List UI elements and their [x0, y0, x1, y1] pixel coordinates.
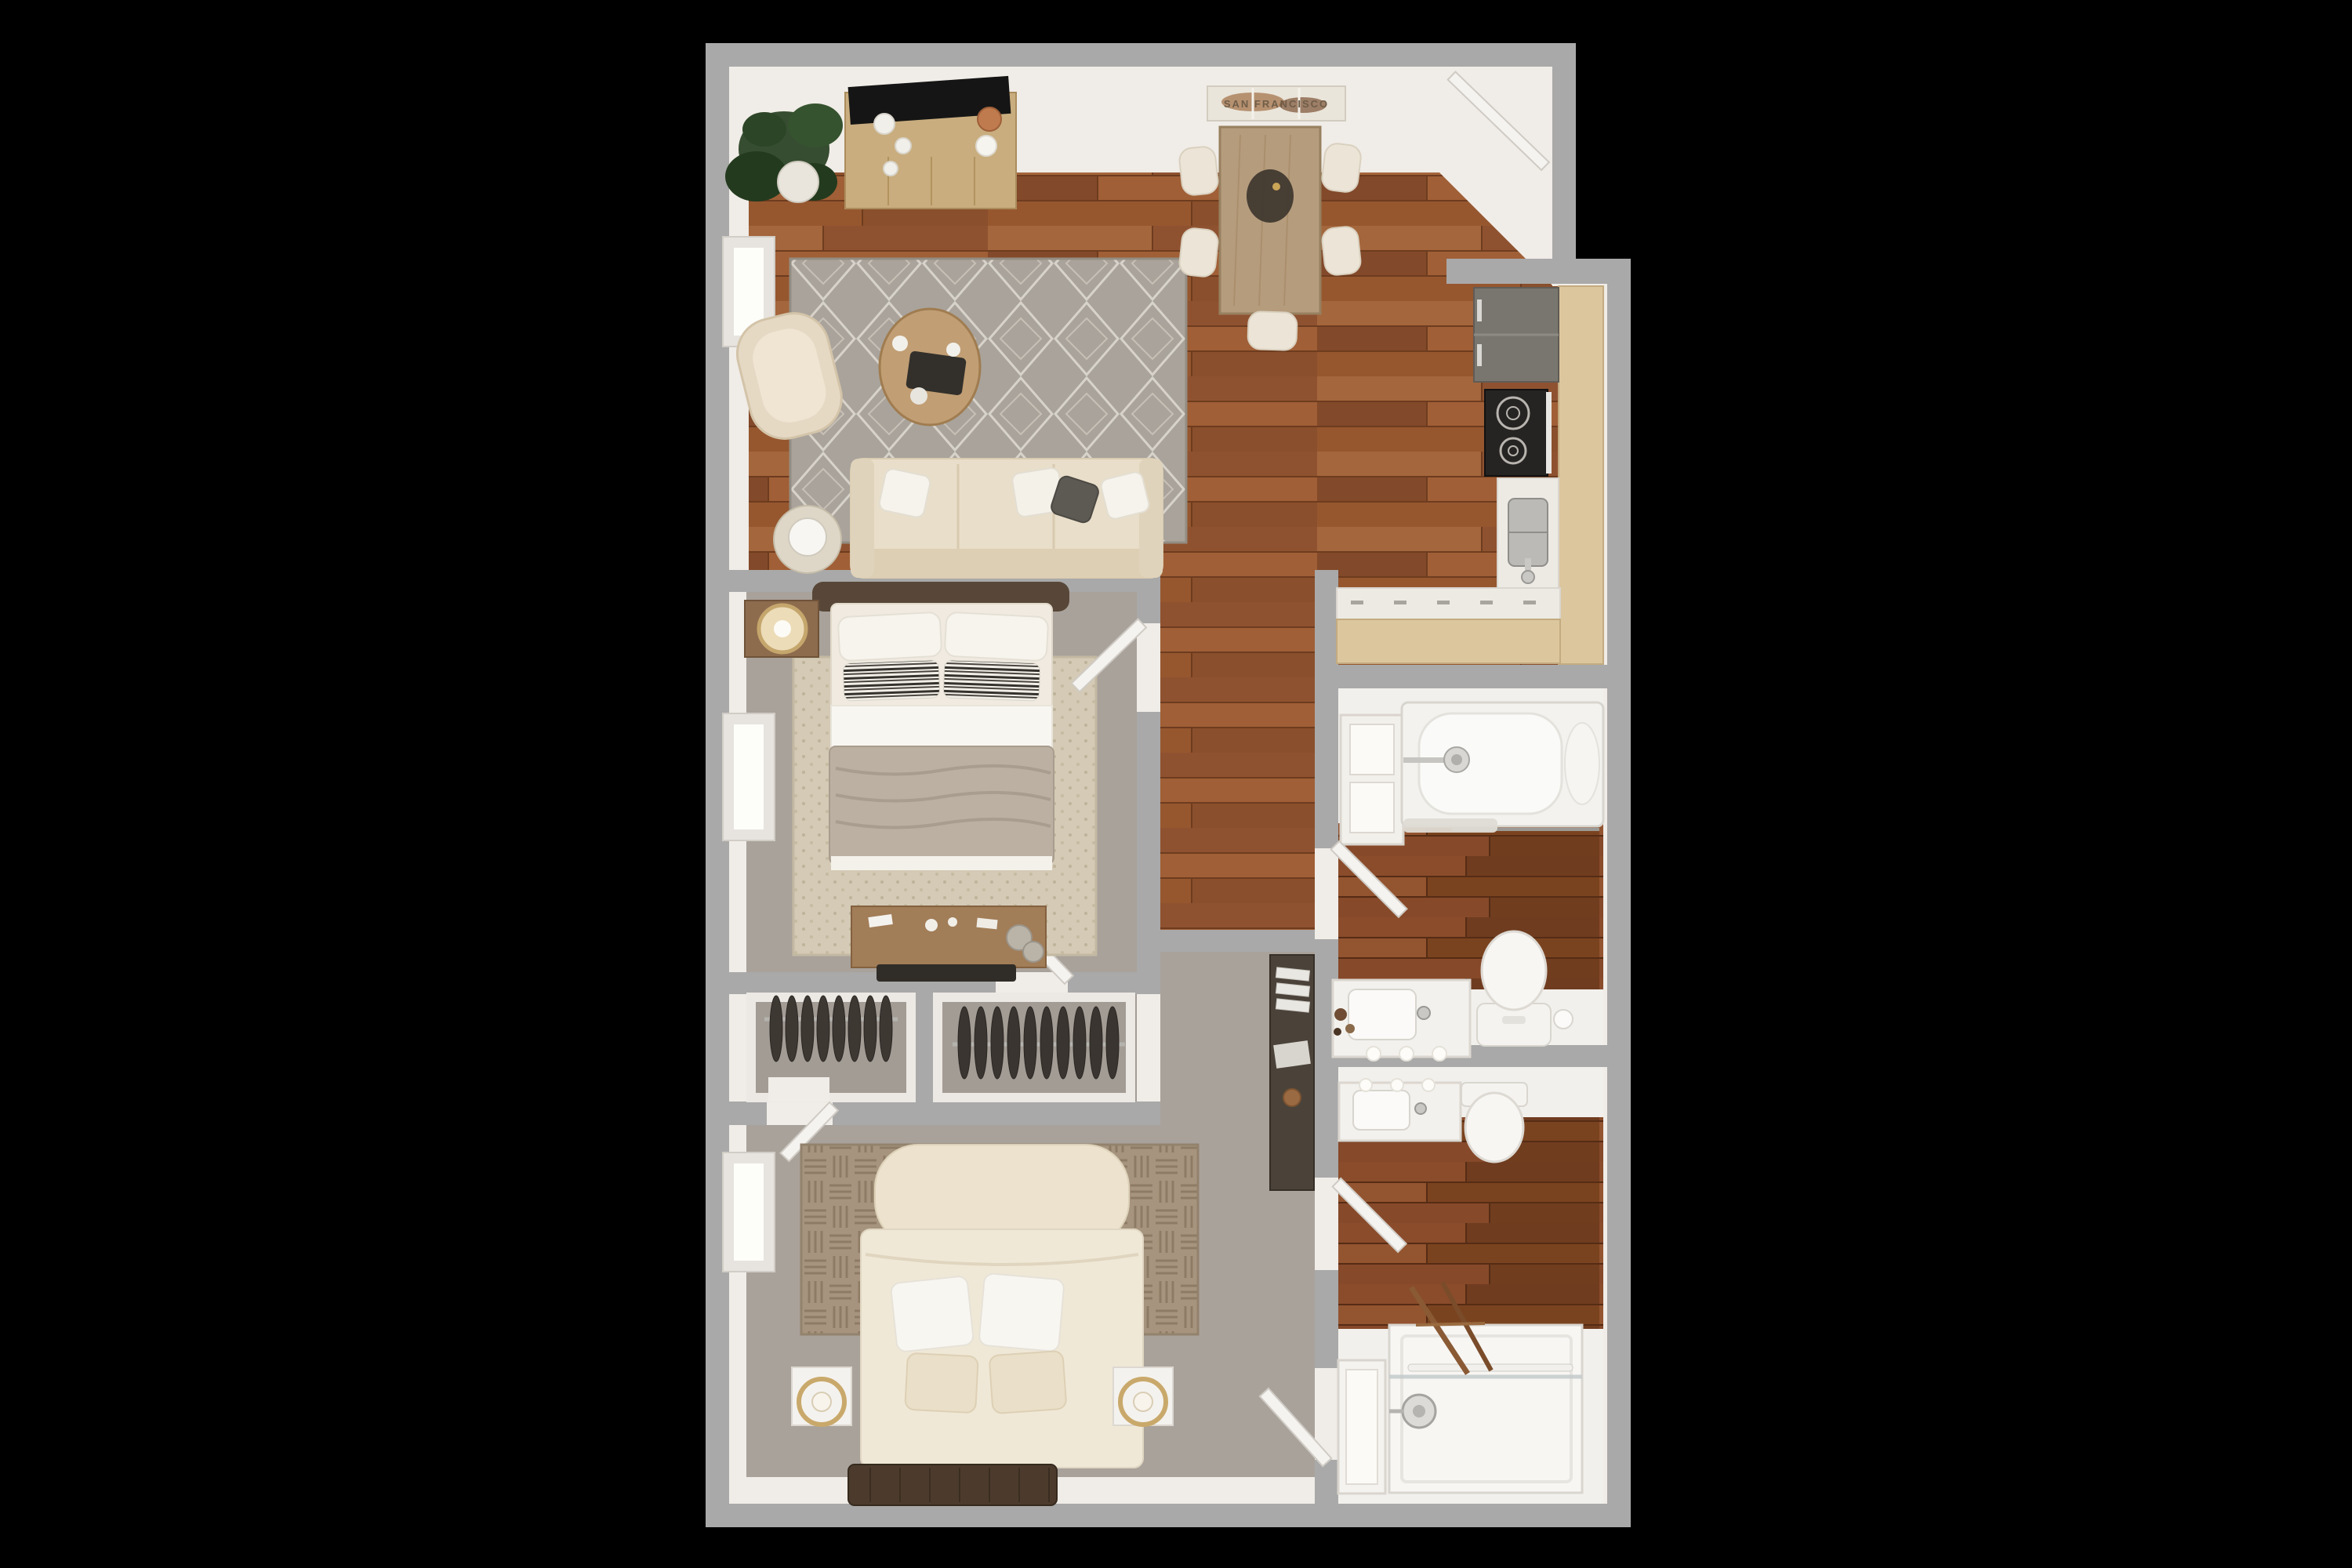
bed-1-pillow-2: [945, 612, 1049, 662]
desk-paper: [1273, 1040, 1311, 1069]
floor-bathroom-1-wood: [1338, 823, 1603, 989]
bed-1-striped-pillow-1: [843, 660, 940, 701]
plant-pot: [778, 162, 818, 202]
bed-2-pillow-white-2: [978, 1273, 1065, 1352]
dining-chair-1: [1178, 146, 1219, 196]
sofa-back: [851, 549, 1163, 578]
vanity-2-faucet: [1415, 1103, 1426, 1114]
wall-kitchen-top: [1446, 259, 1552, 284]
window-bedroom1-glass: [734, 724, 764, 829]
vanity-light: [1422, 1079, 1435, 1091]
tub-faucet-stem: [1403, 757, 1449, 763]
hanging-clothes: [1024, 1007, 1036, 1079]
bed-1-striped-pillow-2: [943, 660, 1040, 701]
vanity-1-faucet: [1417, 1007, 1430, 1019]
hanging-clothes: [1057, 1007, 1069, 1079]
cabinet-handle: [1480, 601, 1493, 604]
console-plate-3: [884, 162, 898, 176]
hanging-clothes: [770, 996, 782, 1062]
dresser-sphere-2: [1023, 942, 1044, 962]
vanity-light: [1367, 1047, 1381, 1061]
hanging-clothes: [848, 996, 861, 1062]
cabinet-handle: [1394, 601, 1406, 604]
fridge-handle: [1477, 344, 1482, 366]
hanging-clothes: [1073, 1007, 1086, 1079]
hanging-clothes: [833, 996, 845, 1062]
console-vase: [978, 107, 1001, 131]
cabinet-handle: [1523, 601, 1536, 604]
wall-nook-top: [1160, 930, 1315, 952]
bathtub-seat: [1565, 723, 1599, 804]
wall-art-text: SAN FRANCISCO: [1224, 98, 1329, 110]
console-flower: [976, 136, 996, 156]
hanging-clothes: [1106, 1007, 1119, 1079]
wall-closet-bottom-right: [833, 1102, 1160, 1125]
dresser-tray: [877, 964, 1016, 982]
cabinet-handle: [1437, 601, 1450, 604]
side-table-glass: [789, 518, 826, 556]
hanging-clothes: [1090, 1007, 1102, 1079]
vanity-1-soap-2: [1345, 1024, 1355, 1033]
sofa-arm-left: [851, 459, 874, 578]
bed-1-foot-sheet: [831, 856, 1052, 870]
oven-handle: [1546, 392, 1552, 474]
wall-closet-bottom-left: [729, 1102, 767, 1125]
window-bedroom2-glass: [734, 1163, 764, 1261]
tub-faucet-inner: [1451, 754, 1462, 765]
closet-1-door-threshold: [768, 1077, 829, 1102]
hanging-clothes: [817, 996, 829, 1062]
toilet-1-button: [1502, 1016, 1526, 1024]
sofa-pillow-1: [878, 468, 931, 519]
hanging-clothes: [786, 996, 798, 1062]
hanging-clothes: [991, 1007, 1004, 1079]
bed-2-pillow-cream-1: [905, 1353, 978, 1414]
dining-chair-3: [1321, 142, 1363, 193]
plant-leaves-4: [742, 112, 786, 147]
kitchen-faucet: [1522, 571, 1534, 583]
vanity-light: [1432, 1047, 1446, 1061]
bed-2-bench: [848, 1465, 1057, 1505]
vanity-light: [1391, 1079, 1403, 1091]
toilet-1-bowl: [1482, 931, 1546, 1010]
desk-cup: [1283, 1089, 1301, 1106]
lamp-2-right-bulb: [1134, 1392, 1152, 1411]
wall-center-vertical-d: [1315, 1270, 1338, 1368]
toilet-2-bowl: [1465, 1093, 1523, 1162]
vanity-light: [1359, 1079, 1372, 1091]
linen-shelf-cubby-1: [1350, 724, 1394, 775]
linen-shelf-cubby-2: [1350, 782, 1394, 833]
hanging-clothes: [880, 996, 892, 1062]
wall-center-vertical-c: [1315, 1067, 1338, 1178]
wall-closet-top-right: [1068, 972, 1160, 994]
hanging-clothes: [975, 1007, 987, 1079]
dining-centerpiece-accent: [1272, 183, 1280, 191]
shower-door-crossbar: [1416, 1323, 1485, 1325]
hanging-clothes: [864, 996, 877, 1062]
dresser-decor-2: [948, 917, 957, 927]
wall-center-vertical-e: [1315, 1460, 1338, 1504]
shower-head-inner: [1413, 1405, 1425, 1417]
coffee-table-cup-1: [892, 336, 908, 351]
dining-chair-2: [1178, 227, 1219, 278]
lamp-2-left-bulb: [812, 1392, 831, 1411]
floor-plan-shapes: SAN FRANCISCO: [706, 43, 1631, 1527]
utility-closet-inner: [1346, 1370, 1377, 1484]
wall-kitchen-bath1: [1315, 665, 1631, 688]
fridge-handle: [1477, 299, 1482, 321]
plant-leaves-3: [788, 103, 843, 147]
vanity-light: [1399, 1047, 1414, 1061]
kitchen-counter-right: [1559, 286, 1603, 664]
wall-closet-divider: [913, 994, 934, 1102]
hanging-clothes: [801, 996, 814, 1062]
hanging-clothes: [1040, 1007, 1053, 1079]
tub-towel: [1403, 818, 1497, 833]
wall-bedroom1-right-lower: [1137, 712, 1160, 972]
dining-chair-5: [1247, 311, 1298, 350]
vanity-1-soap-1: [1334, 1008, 1347, 1021]
hanging-clothes: [1007, 1007, 1020, 1079]
hanging-clothes: [958, 1007, 971, 1079]
bed-2-pillow-white-1: [891, 1276, 975, 1352]
floor-hallway: [1160, 582, 1315, 931]
dining-chair-4: [1321, 226, 1362, 276]
bed-1-pillow-1: [838, 612, 942, 662]
floor-plan-image: SAN FRANCISCO: [0, 0, 2352, 1568]
vanity-1-soap-3: [1334, 1028, 1341, 1036]
wall-center-vertical-a: [1315, 570, 1338, 848]
dining-centerpiece: [1247, 169, 1294, 223]
bathtub-basin: [1419, 713, 1562, 814]
toilet-paper-holder: [1554, 1010, 1573, 1029]
console-plate-1: [874, 114, 895, 134]
dresser-decor-1: [925, 919, 938, 931]
vanity-2-sink: [1353, 1091, 1410, 1130]
coffee-table-cup-2: [946, 343, 960, 357]
console-plate-2: [895, 138, 911, 154]
coffee-table-plate: [910, 387, 927, 405]
bed-1-blanket: [829, 746, 1054, 864]
cabinet-handle: [1351, 601, 1363, 604]
vanity-1-sink: [1348, 989, 1416, 1040]
bed-2-pillow-cream-2: [989, 1351, 1067, 1414]
lamp-1-bulb: [774, 620, 791, 637]
kitchen-counter-bottom: [1337, 619, 1560, 663]
